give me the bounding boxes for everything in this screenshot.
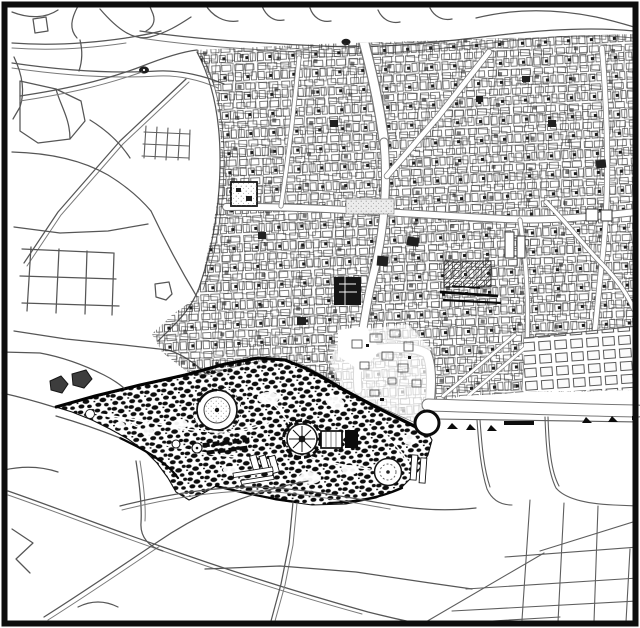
dark-building: [334, 277, 361, 305]
courtyard-building: [346, 199, 394, 214]
white-grid-building: [321, 431, 342, 448]
park-radial-plaza: [284, 421, 321, 458]
roundabout: [415, 411, 439, 435]
park-white-circle: [375, 459, 402, 486]
black-pavilion: [345, 430, 358, 448]
city-map-svg: [0, 0, 640, 628]
walled-compound: [231, 182, 257, 206]
hatched-building: [444, 261, 491, 287]
map-figure: [0, 0, 640, 628]
wide-road: [428, 405, 638, 411]
